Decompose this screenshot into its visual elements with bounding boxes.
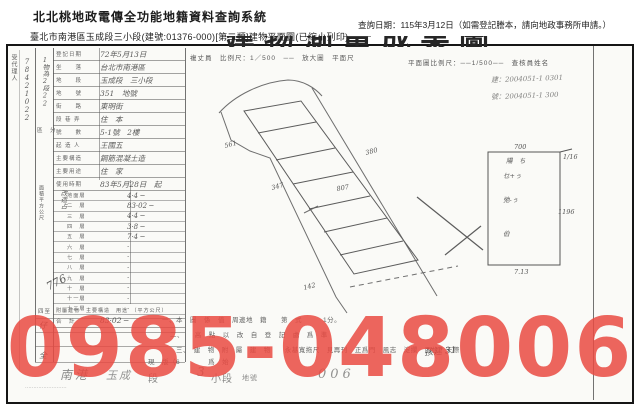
bottom-print-duan: 段 (148, 370, 159, 385)
floor-row: 五 層7·4 ─ (53, 232, 185, 242)
scale-note-right: 平面圖比例尺：──1/500── 查核員姓名 (408, 57, 549, 67)
note-line-1: 一、本 圖 係 值 周邊地 籍 第 式 1分。 (162, 314, 341, 324)
table-row: 登記日期72年5月13日 (53, 48, 185, 61)
bottom-print-dihao: 地號 (242, 373, 258, 383)
floor-row: 十 層· (53, 284, 185, 294)
table-row: 地 段玉成段 三小段 (53, 74, 185, 87)
section-label-sizhi: 四至 (38, 307, 51, 315)
floor-row: 七 層· (53, 253, 185, 263)
section-hand-zi: 仔 (39, 320, 47, 331)
note-line-2: 二、 高 點 以 改 自 登 記 處 爲 準 (170, 329, 328, 339)
note-line-4: 現 版（6 爲 始 (148, 356, 229, 366)
note-line-3: 三、 建 物 附 屬 建 物 永基寬拖尺 見再刊 正爲門 風志 淀攔 西位 天際 (176, 344, 576, 354)
floor-row: 八 層· (53, 263, 185, 273)
table-hline-2 (35, 332, 185, 333)
bottom-hand-nangang: 南港 (60, 366, 90, 383)
table-line-1 (35, 48, 36, 362)
bottom-hand-006: 006 (318, 367, 355, 382)
left-margin-rule (19, 50, 20, 370)
clipped-form-title: 建物測量成果圖 (225, 36, 515, 47)
system-title: 北北桃地政電傳全功能地籍資料查詢系統 (33, 8, 267, 25)
table-row: 坐 落台北市南港區 (53, 61, 185, 74)
bottom-hand-yucheng: 玉成 (106, 367, 132, 383)
bottom-hand-3: 3 (197, 365, 205, 379)
margin-hand-note: 78421022 (23, 58, 31, 122)
section-label-area: 面積平方公尺 (38, 185, 45, 221)
section-hand-quan: 全 (39, 350, 47, 361)
table-row: 主要用途住 家 (53, 165, 185, 178)
table-row: 地 號351 地號 (53, 87, 185, 100)
margin-hand-note-2: 1物為2段22 (40, 56, 50, 108)
right-column-divider (593, 46, 594, 400)
table-row: 使用時期83年5月28日 起 (53, 178, 185, 191)
table-row: 段 巷 弄住 本 (53, 113, 185, 126)
table-row: 號 數5-1號 2樓 (53, 126, 185, 139)
bottom-print-xiaoduan: 小段 (211, 370, 233, 385)
margin-agent-label: 受代理人 (9, 54, 18, 82)
floor-row: 六 層· (53, 242, 185, 252)
table-row: 起 造 人王國五 (53, 139, 185, 152)
floor-row: 四 層3·8 ─ (53, 222, 185, 232)
field-label: 登記日期 (53, 50, 100, 58)
floor-row: 地面層4·4 ─ (53, 191, 185, 201)
floor-row: 九 層· (53, 273, 185, 283)
floor-row: 十一層· (53, 294, 185, 304)
query-date: 查詢日期：115年3月12日（如需登記謄本，請向地政事務所申請。） (358, 19, 611, 31)
scale-note-left: 複丈員 比例尺：1／500 ── 放大圖 平面尺 (190, 52, 355, 62)
table-hline-3 (35, 346, 185, 347)
footer-dashes: ························· (25, 385, 67, 391)
field-value: 72年5月13日 (100, 49, 146, 60)
floor-row: 三 層4·4 ─ (53, 212, 185, 222)
table-row: 街 路東明街 (53, 100, 185, 113)
floor-row: 二 層83·02 ─ (53, 201, 185, 211)
form-table: 登記日期72年5月13日 坐 落台北市南港區 地 段玉成段 三小段 地 號351… (53, 48, 185, 328)
table-row: 主要構造鋼筋混凝土造 (53, 152, 185, 165)
